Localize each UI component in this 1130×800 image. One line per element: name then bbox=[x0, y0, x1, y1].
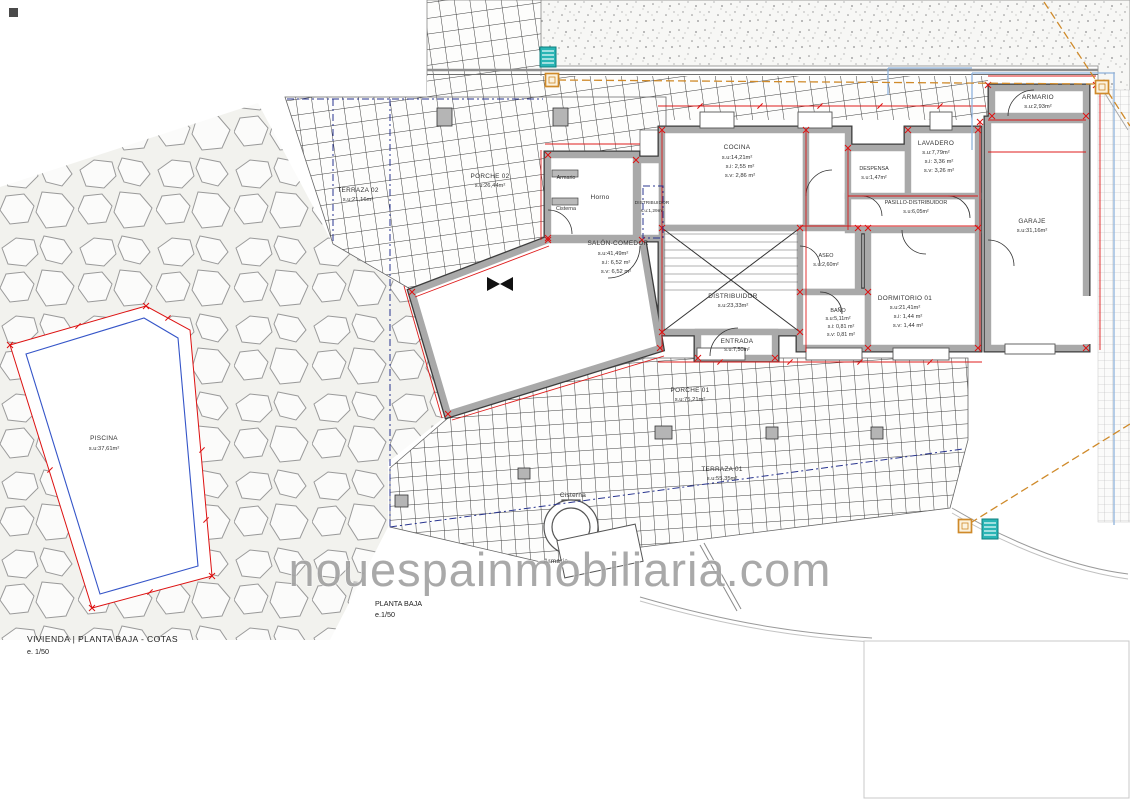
label-bano-si: s.i: 0,81 m² bbox=[828, 324, 855, 330]
label-dormitorio01-sv: s.v: 1,44 m² bbox=[893, 323, 923, 329]
label-entrada: ENTRADA bbox=[721, 338, 754, 345]
label-cocina-si: s.i: 2,55 m² bbox=[726, 164, 755, 170]
blank-corner-panel bbox=[864, 641, 1129, 798]
boundary-marker-icon bbox=[546, 74, 559, 87]
label-armario-garaje: ARMARIO bbox=[1022, 94, 1054, 101]
label-lavadero: LAVADERO bbox=[918, 140, 954, 147]
label-cocina: COCINA bbox=[724, 144, 751, 151]
label-terraza02: TERRAZA 02 bbox=[337, 187, 379, 194]
label-salon-sv: s.v: 6,52 m² bbox=[601, 269, 631, 275]
label-distribuidor: DISTRIBUIDOR bbox=[708, 293, 757, 300]
boundary-marker-icon bbox=[1096, 81, 1109, 94]
label-pasillo-area: s.u:6,05m² bbox=[903, 209, 929, 215]
label-porche01: PORCHE 01 bbox=[671, 387, 710, 394]
label-bano: BAÑO bbox=[830, 307, 845, 314]
label-distribuidor-peq: DISTRIBUIDOR bbox=[635, 200, 670, 206]
label-terraza02-area: s.u:21,16m² bbox=[343, 197, 374, 203]
label-salon-si: s.i: 6,52 m² bbox=[602, 260, 631, 266]
label-despensa-area: s.u:1,47m² bbox=[861, 175, 887, 181]
plan-caption-scale: e.1/50 bbox=[375, 610, 395, 619]
plan-caption-label: PLANTA BAJA bbox=[375, 599, 422, 608]
label-porche02-area: s.u:26,44m² bbox=[475, 183, 506, 189]
water-feature-icon bbox=[982, 519, 998, 539]
label-terraza01: TERRAZA 01 bbox=[701, 466, 743, 473]
pool-steps-icon bbox=[540, 47, 556, 67]
label-entrada-area: s.u:7,50m² bbox=[724, 347, 750, 353]
label-terraza01-area: s.u:55,35m² bbox=[707, 476, 738, 482]
label-lavadero-sv: s.v: 3,26 m² bbox=[924, 168, 954, 174]
label-piscina: PISCINA bbox=[90, 435, 118, 442]
label-dormitorio01: DORMITORIO 01 bbox=[878, 295, 932, 302]
label-salon: SALÓN-COMEDOR bbox=[587, 238, 648, 247]
label-lavadero-su: s.u:7,79m² bbox=[922, 150, 949, 156]
survey-mark bbox=[9, 8, 18, 17]
label-pasillo: PASILLO-DISTRIBUIDOR bbox=[885, 200, 948, 206]
label-porche02: PORCHE 02 bbox=[471, 173, 510, 180]
label-cocina-su: s.u:14,21m² bbox=[722, 155, 753, 161]
label-cisterna-ext: Cisterna bbox=[560, 492, 586, 499]
label-distribuidor-area: s.u:23,33m² bbox=[718, 303, 749, 309]
label-dormitorio01-su: s.u:21,41m² bbox=[890, 305, 921, 311]
label-piscina-area: s.u:37,61m² bbox=[89, 446, 120, 452]
sheet-scale: e. 1/50 bbox=[27, 647, 49, 656]
floor-plan-canvas: TERRAZA 02 s.u:21,16m² PORCHE 02 s.u:26,… bbox=[0, 0, 1130, 800]
label-garaje: GARAJE bbox=[1018, 218, 1045, 225]
label-dormitorio01-si: s.i: 1,44 m² bbox=[894, 314, 923, 320]
boundary-marker-icon bbox=[959, 520, 972, 533]
label-armario-garaje-area: s.u:2,93m² bbox=[1024, 104, 1051, 110]
label-bano-su: s.u:5,11m² bbox=[825, 316, 850, 322]
label-cocina-sv: s.v: 2,86 m² bbox=[725, 173, 755, 179]
label-despensa: DESPENSA bbox=[859, 166, 889, 172]
label-horno: Horno bbox=[591, 194, 610, 201]
label-lavadero-si: s.i: 3,36 m² bbox=[925, 159, 954, 165]
label-salon-su: s.u:41,49m² bbox=[598, 251, 629, 257]
label-armario-wall: Armario bbox=[557, 175, 576, 181]
label-porche01-area: s.u:75,21m² bbox=[675, 397, 706, 403]
watermark-text: nouespainmobiliaria.com bbox=[289, 543, 832, 596]
label-aseo-area: s.u:2,60m² bbox=[813, 262, 839, 268]
label-garaje-area: s.u:31,16m² bbox=[1017, 228, 1048, 234]
label-aseo: ASEO bbox=[819, 253, 834, 259]
sheet-title: VIVIENDA | PLANTA BAJA - COTAS bbox=[27, 634, 178, 644]
label-cisterna-wall: Cisterna bbox=[556, 206, 576, 212]
floor-plan-sheet: TERRAZA 02 s.u:21,16m² PORCHE 02 s.u:26,… bbox=[0, 0, 1130, 800]
label-bano-sv: s.v: 0,81 m² bbox=[827, 332, 855, 338]
label-distribuidor-peq-area: s.u:1,29m² bbox=[641, 208, 664, 214]
